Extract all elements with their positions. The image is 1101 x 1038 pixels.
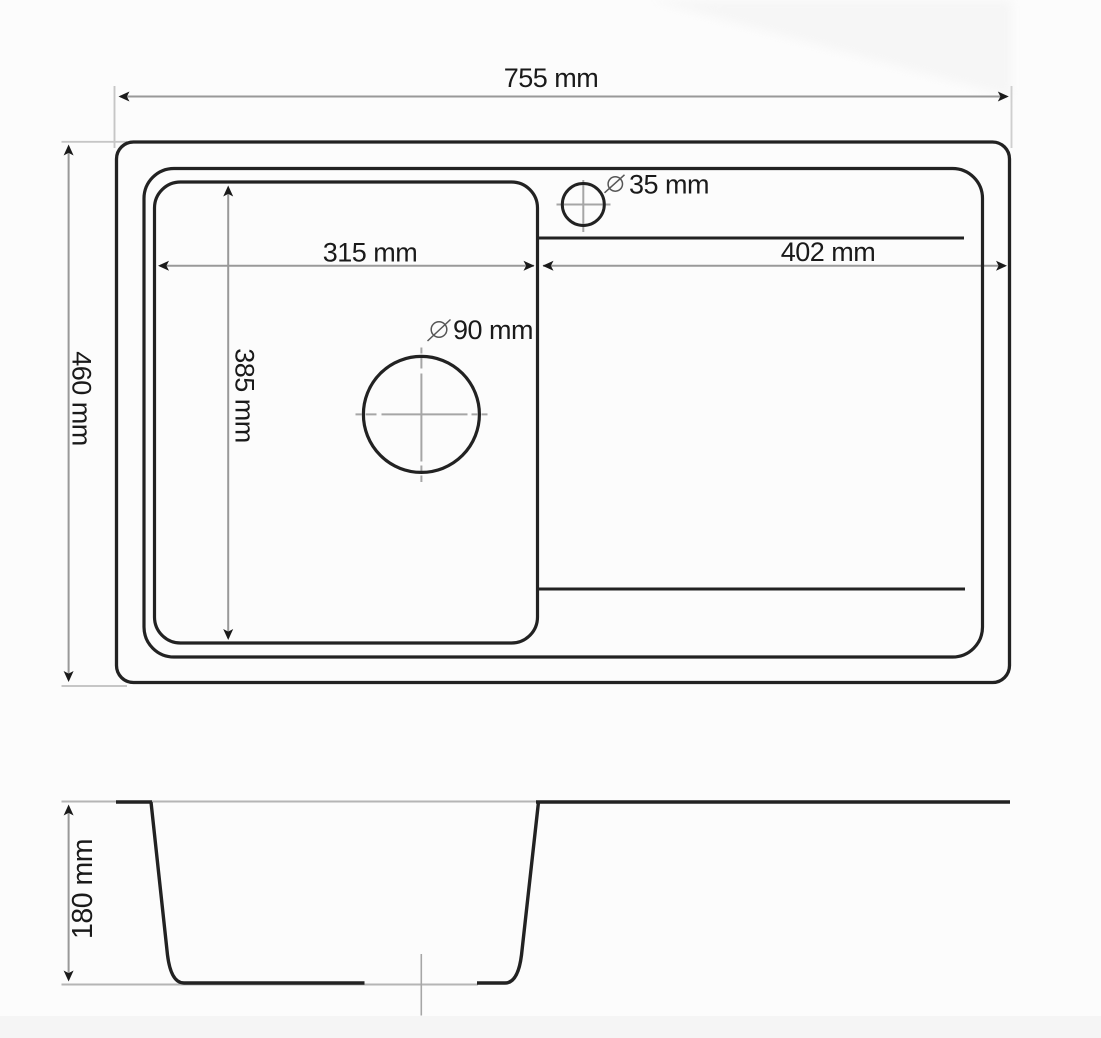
svg-text:385 mm: 385 mm xyxy=(230,348,260,443)
svg-text:402 mm: 402 mm xyxy=(781,237,876,267)
svg-text:755 mm: 755 mm xyxy=(504,63,599,93)
svg-text:460 mm: 460 mm xyxy=(67,351,97,446)
svg-text:90 mm: 90 mm xyxy=(453,315,533,345)
svg-text:315 mm: 315 mm xyxy=(323,237,418,267)
svg-text:35 mm: 35 mm xyxy=(629,170,709,200)
svg-text:180 mm: 180 mm xyxy=(67,839,99,939)
